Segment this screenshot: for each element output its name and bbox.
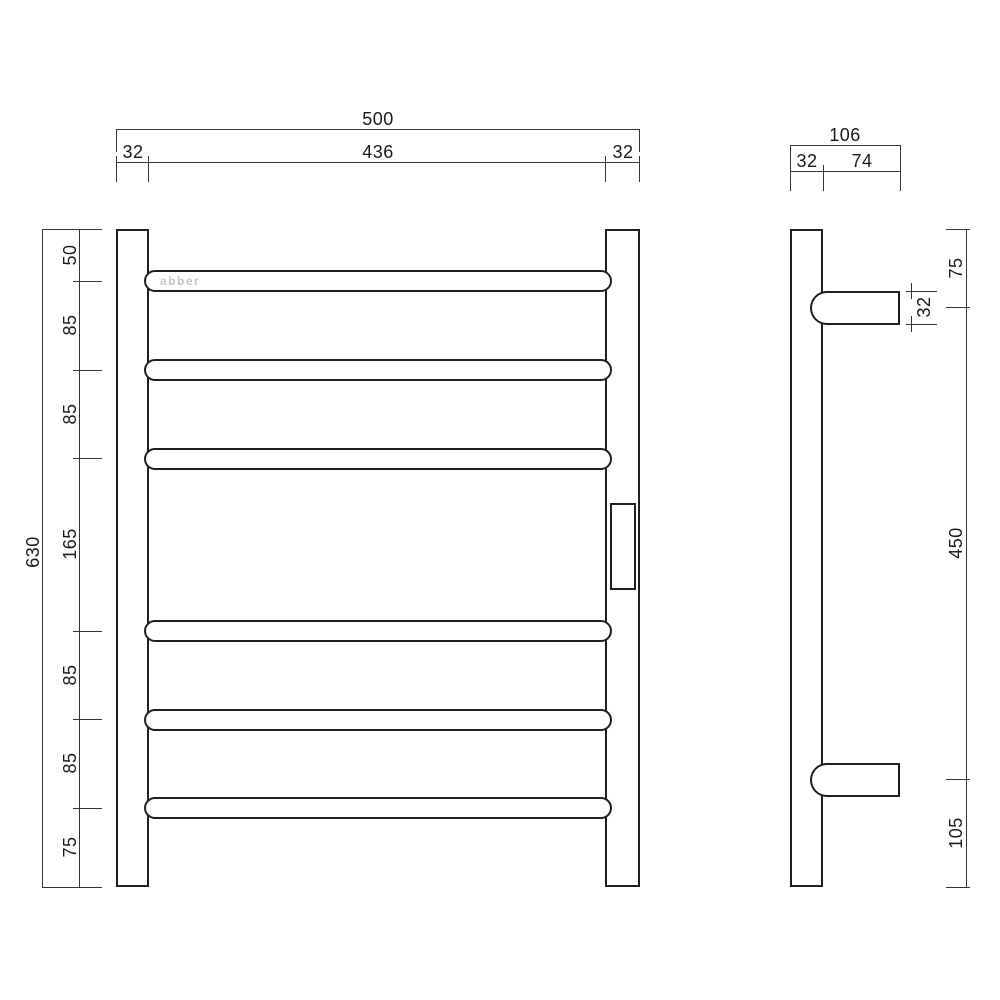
dim-tick [42, 229, 102, 230]
towel-rail-technical-drawing: abber 500 32 436 32 630 50 85 85 165 85 … [0, 0, 1000, 1000]
dim-tick [73, 631, 102, 632]
dim-tick [639, 156, 640, 182]
front-bar-2 [144, 359, 612, 381]
dim-overall-depth-value: 106 [827, 126, 863, 144]
front-bar-1: abber [144, 270, 612, 292]
dim-tick [116, 129, 117, 152]
dim-chain-value: 450 [947, 525, 965, 561]
dim-tick [73, 808, 102, 809]
dim-chain-value: 165 [61, 526, 79, 562]
dim-tick [73, 719, 102, 720]
dim-tick [73, 281, 102, 282]
dim-chain-value: 105 [947, 815, 965, 851]
dim-chain-value: 85 [61, 312, 79, 337]
dim-tick [790, 165, 791, 191]
front-bar-6 [144, 797, 612, 819]
heating-element-box [610, 503, 636, 590]
front-bar-5 [144, 709, 612, 731]
side-bottom-bracket [810, 763, 900, 797]
dim-inner-width-line [116, 162, 640, 163]
dim-tick [900, 165, 901, 191]
dim-tick [116, 156, 117, 182]
dim-chain-value: 75 [947, 255, 965, 280]
dim-depth-chain-line [790, 171, 901, 172]
dim-tick [639, 129, 640, 152]
dim-tube-diameter-value: 32 [915, 294, 933, 319]
dim-side-chain-line [966, 229, 967, 887]
dim-chain-value: 85 [61, 662, 79, 687]
dim-chain-value: 75 [61, 834, 79, 859]
dim-tick [73, 370, 102, 371]
dim-rail-depth-value: 32 [794, 152, 819, 170]
dim-tick [946, 229, 970, 230]
dim-tick [42, 887, 102, 888]
dim-left-offset-value: 32 [120, 143, 145, 161]
side-top-bracket [810, 291, 900, 325]
front-bar-4 [144, 620, 612, 642]
dim-tick [946, 307, 970, 308]
dim-chain-value: 85 [61, 401, 79, 426]
dim-tick [946, 779, 970, 780]
dim-overall-depth-line [790, 145, 901, 146]
dim-tick [605, 156, 606, 182]
dim-tick [911, 283, 912, 299]
dim-bracket-length-value: 74 [849, 152, 874, 170]
dim-tick [73, 458, 102, 459]
dim-tick [946, 887, 970, 888]
front-bar-3 [144, 448, 612, 470]
dim-inner-width-value: 436 [360, 143, 396, 161]
dim-chain-value: 50 [61, 242, 79, 267]
dim-overall-height-value: 630 [24, 534, 42, 570]
dim-overall-width-value: 500 [360, 110, 396, 128]
front-left-rail [116, 229, 149, 887]
dim-tick [823, 165, 824, 191]
dim-overall-width-line [116, 129, 640, 130]
dim-tick [148, 156, 149, 182]
dim-chain-value: 85 [61, 750, 79, 775]
brand-logo: abber [160, 274, 200, 288]
dim-right-offset-value: 32 [610, 143, 635, 161]
dim-tick [911, 316, 912, 332]
